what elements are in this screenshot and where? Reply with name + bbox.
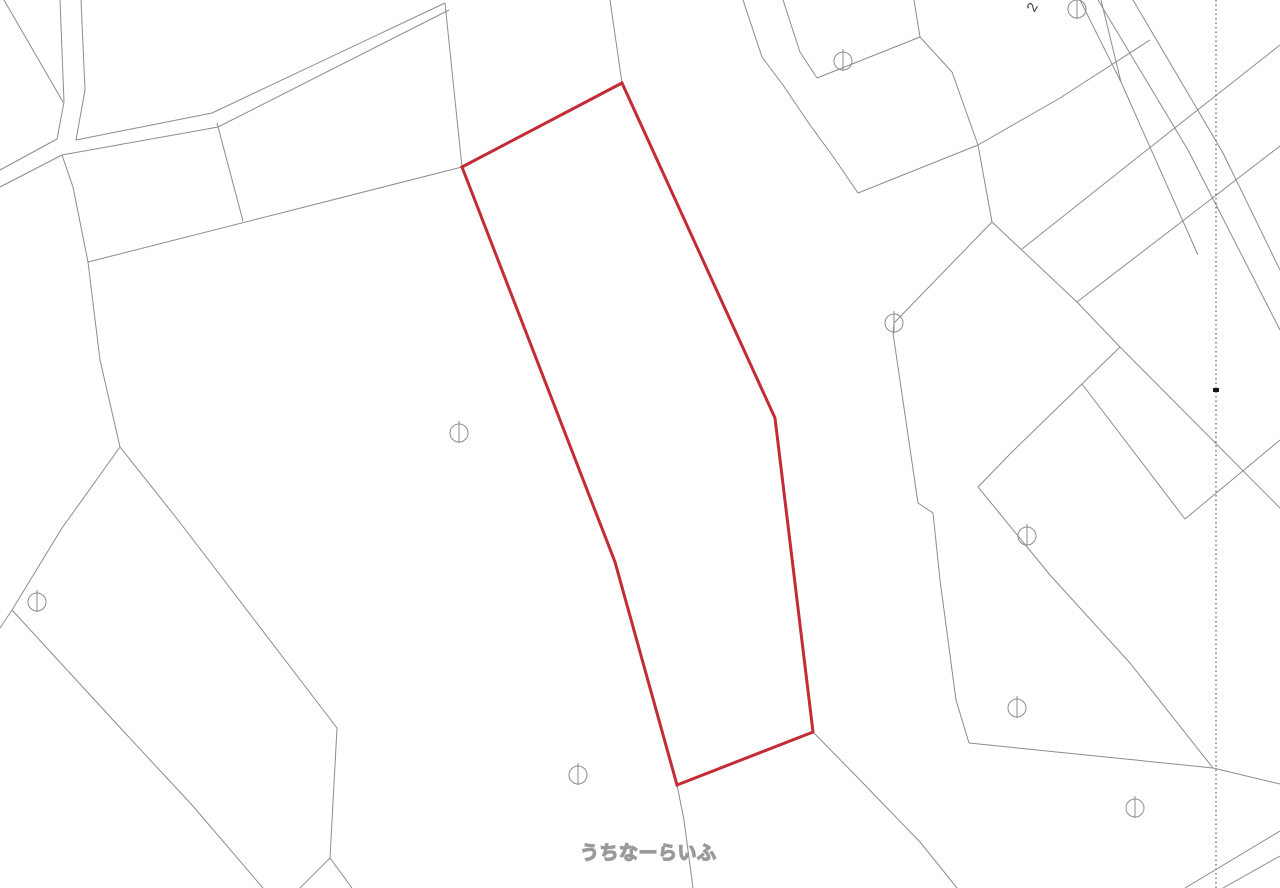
parcel-boundary-line	[914, 0, 992, 222]
parcel-boundary-line	[817, 37, 920, 78]
parcel-boundary-line	[0, 0, 64, 170]
parcel-boundary-line	[893, 222, 992, 743]
parcel-boundary-line	[969, 743, 1280, 784]
parcel-boundary-line	[88, 167, 462, 262]
parcel-boundary-line	[858, 145, 978, 193]
parcel-boundary-line	[1133, 0, 1280, 270]
parcel-boundary-line	[1121, 82, 1198, 255]
parcel-boundary-line	[743, 0, 858, 193]
parcel-boundary-line	[978, 40, 1150, 145]
cadastral-map[interactable]	[0, 0, 1280, 888]
tick-marker	[1213, 388, 1219, 392]
parcel-boundary-line	[4, 0, 63, 102]
parcel-boundary-line	[1185, 831, 1280, 888]
parcel-boundary-line	[88, 262, 120, 447]
parcel-boundary-line	[330, 858, 352, 888]
parcel-boundary-line	[62, 155, 88, 262]
parcel-boundary-line	[992, 222, 1280, 508]
highlighted-parcel-boundary[interactable]	[462, 83, 813, 785]
parcel-boundary-line	[1082, 384, 1280, 519]
parcel-boundary-line	[76, 0, 445, 140]
parcel-boundary-line	[1098, 0, 1280, 330]
cadastral-map-viewer[interactable]: 2 うちなーらいふ	[0, 0, 1280, 888]
parcel-boundary-line	[978, 487, 1213, 768]
parcel-boundary-line	[1223, 856, 1280, 888]
parcel-boundary-line	[12, 610, 263, 888]
parcel-boundary-line	[0, 447, 120, 628]
parcel-boundary-line	[217, 123, 243, 221]
parcel-boundary-line	[610, 0, 622, 83]
parcel-boundary-line	[677, 785, 693, 888]
parcel-boundary-line	[1022, 45, 1280, 249]
parcel-boundary-line	[1077, 146, 1280, 302]
parcel-boundary-line	[813, 732, 957, 888]
parcel-boundary-line	[445, 3, 462, 167]
parcel-boundary-line	[978, 347, 1120, 487]
parcel-boundary-line	[120, 447, 337, 858]
watermark: うちなーらいふ	[580, 838, 717, 865]
parcel-boundary-line	[300, 858, 330, 888]
parcel-boundary-line	[783, 0, 817, 78]
parcel-boundary-line	[1080, 0, 1121, 82]
parcel-boundary-line	[0, 10, 449, 187]
